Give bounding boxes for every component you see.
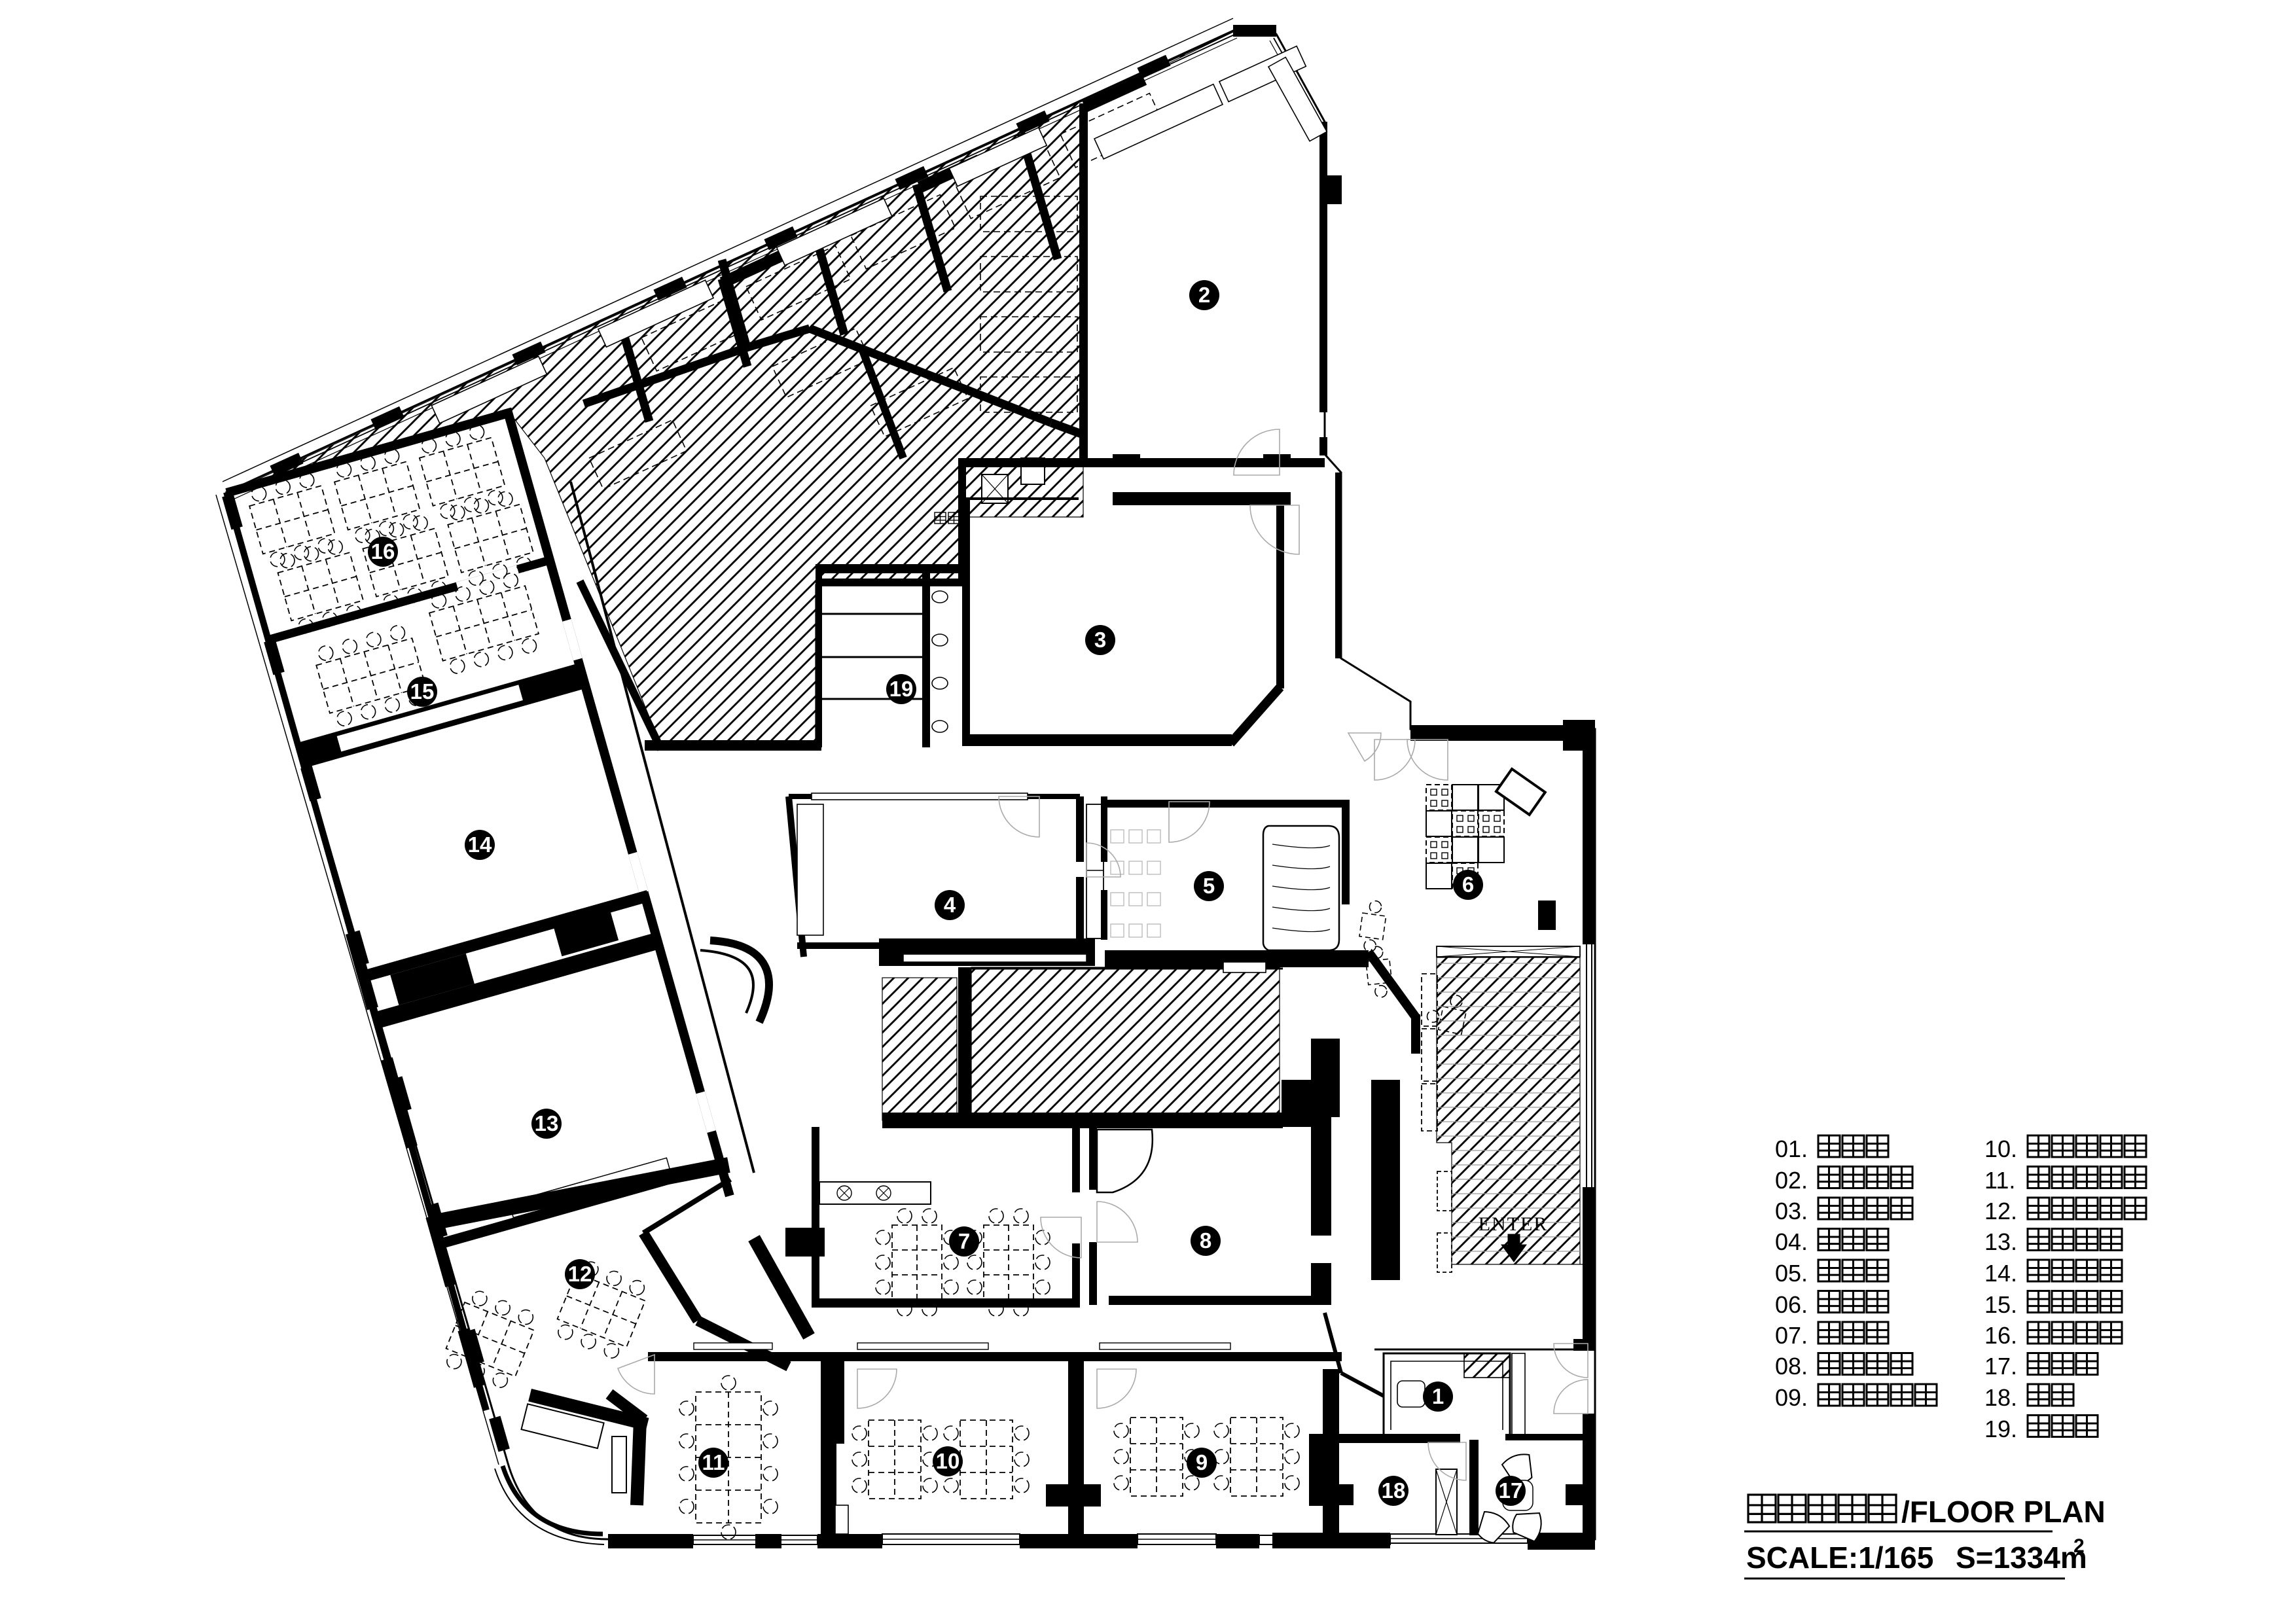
svg-text:S=1334m: S=1334m [1956,1541,2087,1575]
svg-text:04.: 04. [1775,1228,1808,1255]
svg-text:5: 5 [1203,874,1215,898]
svg-text:8: 8 [1200,1228,1211,1253]
svg-text:1: 1 [1432,1384,1444,1408]
svg-text:19.: 19. [1984,1416,2017,1442]
svg-text:11: 11 [702,1450,725,1474]
svg-text:03.: 03. [1775,1198,1808,1224]
svg-text:16.: 16. [1984,1322,2017,1349]
svg-text:7: 7 [958,1229,970,1253]
svg-text:15: 15 [410,679,435,704]
svg-text:3: 3 [1094,628,1106,652]
svg-text:07.: 07. [1775,1322,1808,1349]
svg-text:14: 14 [468,832,492,857]
svg-text:06.: 06. [1775,1291,1808,1318]
svg-text:/FLOOR PLAN: /FLOOR PLAN [1901,1495,2106,1529]
svg-text:12: 12 [568,1262,592,1286]
svg-text:9: 9 [1196,1450,1208,1474]
svg-text:18: 18 [1382,1478,1406,1503]
svg-text:2: 2 [1198,283,1210,307]
svg-text:17.: 17. [1984,1353,2017,1380]
svg-text:05.: 05. [1775,1260,1808,1287]
svg-text:ENTER: ENTER [1479,1213,1549,1235]
svg-text:17: 17 [1499,1478,1523,1503]
svg-text:09.: 09. [1775,1384,1808,1411]
svg-text:13.: 13. [1984,1228,2017,1255]
svg-text:10.: 10. [1984,1135,2017,1162]
svg-text:13: 13 [535,1111,559,1135]
svg-text:11.: 11. [1984,1167,2015,1194]
svg-text:16: 16 [371,539,395,563]
svg-text:02.: 02. [1775,1167,1808,1194]
svg-text:10: 10 [936,1449,960,1473]
svg-text:15.: 15. [1984,1291,2017,1318]
svg-text:6: 6 [1462,872,1474,897]
svg-text:SCALE:1/165: SCALE:1/165 [1746,1541,1933,1575]
svg-text:19: 19 [889,677,914,701]
svg-text:2: 2 [2073,1535,2085,1557]
svg-text:18.: 18. [1984,1384,2017,1411]
svg-text:4: 4 [944,893,956,917]
svg-text:14.: 14. [1984,1260,2017,1287]
svg-text:01.: 01. [1775,1135,1808,1162]
svg-text:08.: 08. [1775,1353,1808,1380]
svg-text:12.: 12. [1984,1198,2017,1224]
